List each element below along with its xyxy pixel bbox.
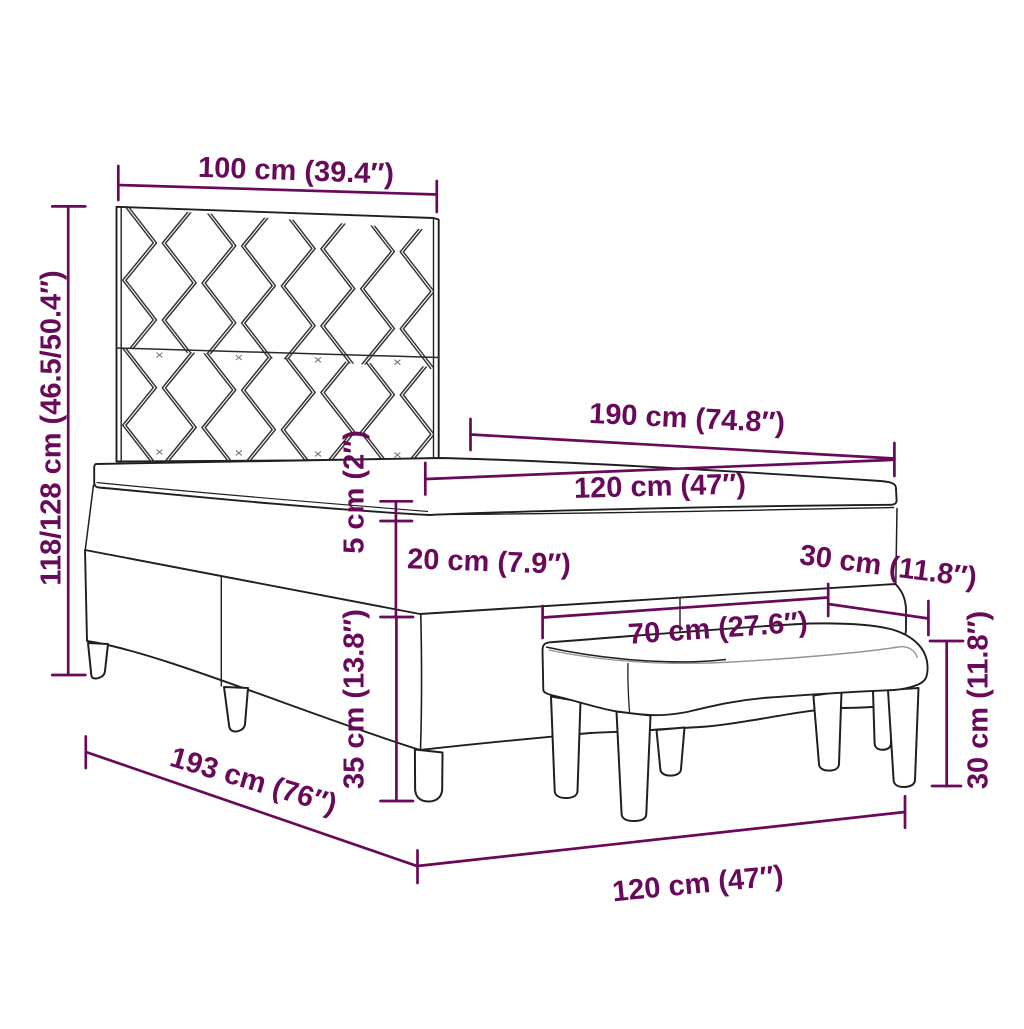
svg-text:30 cm (11.8″): 30 cm (11.8″): [963, 611, 995, 789]
svg-text:100 cm (39.4″): 100 cm (39.4″): [198, 152, 395, 191]
svg-text:20 cm (7.9″): 20 cm (7.9″): [407, 543, 572, 581]
svg-text:35 cm (13.8″): 35 cm (13.8″): [339, 609, 371, 789]
svg-text:120 cm (47″): 120 cm (47″): [574, 468, 747, 504]
svg-text:118/128 cm (46.5/50.4″): 118/128 cm (46.5/50.4″): [36, 270, 68, 585]
svg-text:5 cm (2″): 5 cm (2″): [339, 430, 371, 554]
